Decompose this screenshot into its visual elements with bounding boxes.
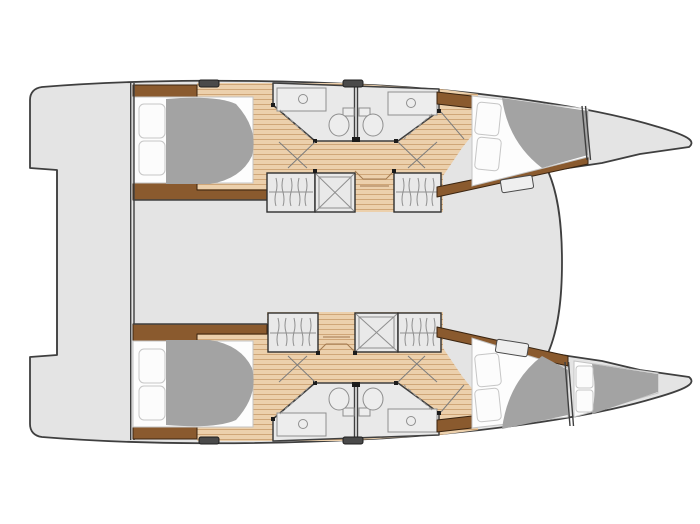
deck-hatch [343, 80, 363, 87]
sink-counter [388, 92, 437, 115]
corner-tick [437, 109, 441, 113]
deck-hatch [199, 80, 219, 87]
pillow [139, 104, 165, 138]
corner-tick [313, 169, 317, 173]
sink-counter [277, 88, 326, 111]
duvet [166, 340, 254, 426]
toilet [329, 388, 349, 410]
pillow [139, 349, 165, 383]
corner-tick [394, 139, 398, 143]
pillow [139, 386, 165, 420]
port-aft-cabin [133, 85, 267, 200]
wall-post [352, 382, 360, 387]
starboard-hull-interior [133, 312, 658, 444]
sink-counter [277, 413, 326, 436]
toilet [363, 388, 383, 410]
pillow [576, 366, 593, 388]
pillow [474, 137, 501, 171]
corner-tick [316, 351, 320, 355]
pillow [576, 390, 593, 412]
duvet [166, 98, 254, 184]
wall-post [352, 137, 360, 142]
corner-tick [353, 351, 357, 355]
toilet [329, 114, 349, 136]
corner-tick [271, 103, 275, 107]
catamaran-floorplan [0, 0, 700, 524]
corner-tick [392, 169, 396, 173]
starboard-lockers-row [268, 313, 441, 355]
deck-hatch [199, 437, 219, 444]
pillow [474, 388, 501, 422]
pillow [474, 353, 501, 387]
toilet-tank [343, 108, 354, 116]
starboard-aft-cabin [133, 324, 267, 439]
deck-hatch [343, 437, 363, 444]
corner-tick [437, 411, 441, 415]
toilet [363, 114, 383, 136]
pillow [474, 102, 501, 136]
corner-tick [394, 381, 398, 385]
sink-counter [388, 409, 437, 432]
port-lockers-row [267, 169, 441, 212]
corner-tick [271, 417, 275, 421]
floorplan-canvas [0, 0, 700, 524]
pillow [139, 141, 165, 175]
toilet-tank [343, 408, 354, 416]
